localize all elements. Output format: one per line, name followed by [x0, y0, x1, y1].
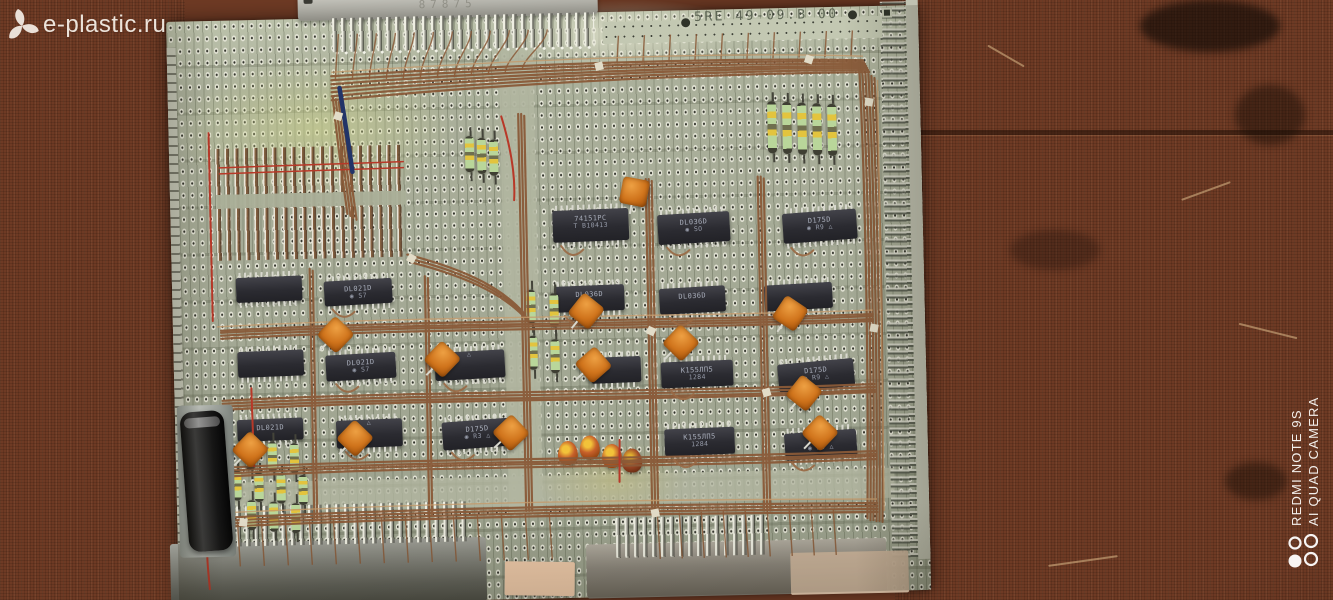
circuit-board: 87875 5RE 49-09.B 00 74151PCT B10413DL03… [166, 5, 931, 600]
capacitor-layer [166, 5, 931, 600]
ceramic-capacitor [785, 374, 823, 412]
bench-smudge [1010, 230, 1100, 270]
ceramic-capacitor [336, 419, 374, 457]
quad-camera-icon [1286, 534, 1320, 572]
workbench-left [0, 0, 185, 600]
ceramic-capacitor [662, 324, 700, 362]
bench-smudge [1235, 85, 1305, 145]
camera-watermark-line1: REDMI NOTE 9S [1288, 397, 1305, 526]
ceramic-capacitor [801, 414, 839, 452]
camera-watermark-line2: AI QUAD CAMERA [1305, 397, 1322, 526]
e-plastic-logo-icon [4, 6, 40, 44]
photo-circuit-board: 87875 5RE 49-09.B 00 74151PCT B10413DL03… [0, 0, 1333, 600]
connector-stamp: 87875 [418, 0, 476, 11]
ceramic-capacitor [619, 176, 651, 208]
ceramic-capacitor [317, 316, 355, 354]
ceramic-capacitor [423, 340, 461, 378]
bench-smudge [1140, 0, 1280, 52]
bench-smudge [1225, 462, 1287, 500]
ceramic-capacitor [567, 292, 605, 330]
site-watermark: e-plastic.ru [4, 6, 166, 44]
ceramic-capacitor [492, 414, 530, 452]
camera-watermark: REDMI NOTE 9S AI QUAD CAMERA [1288, 397, 1322, 526]
site-watermark-text: e-plastic.ru [43, 11, 166, 39]
ceramic-capacitor [772, 295, 809, 332]
ceramic-capacitor [574, 346, 612, 384]
ceramic-capacitor [231, 431, 269, 469]
